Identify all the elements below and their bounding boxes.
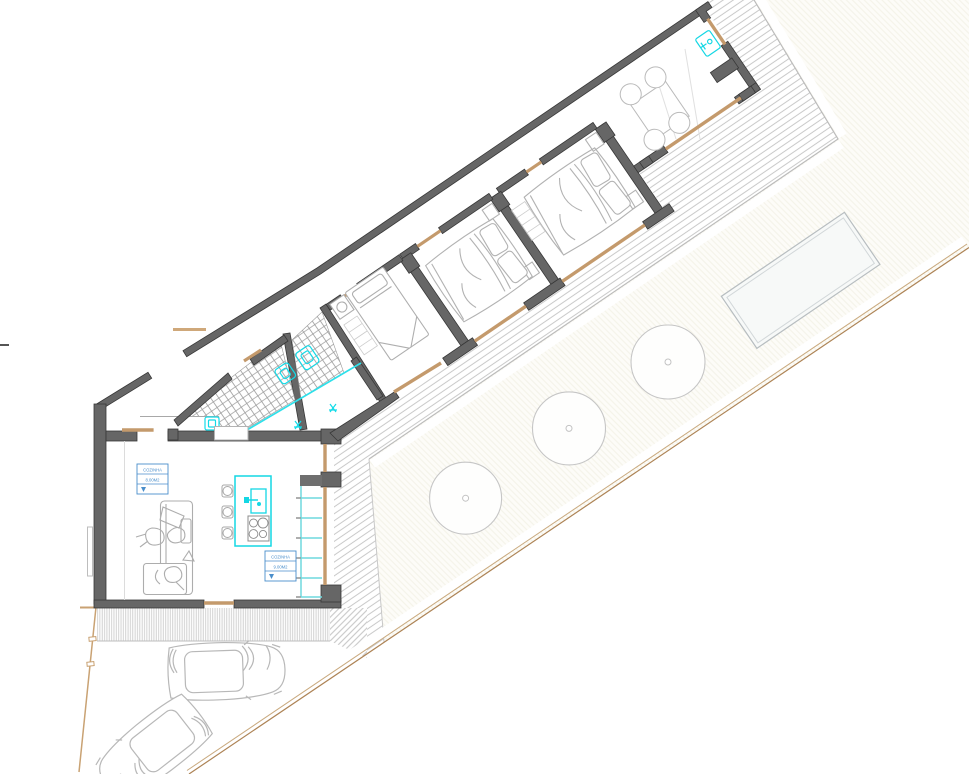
svg-text:COZINHA: COZINHA (143, 468, 162, 473)
svg-text:8.00M2: 8.00M2 (146, 478, 161, 483)
svg-text:COZINHA: COZINHA (271, 555, 290, 560)
svg-text:9.00M2: 9.00M2 (274, 565, 289, 570)
